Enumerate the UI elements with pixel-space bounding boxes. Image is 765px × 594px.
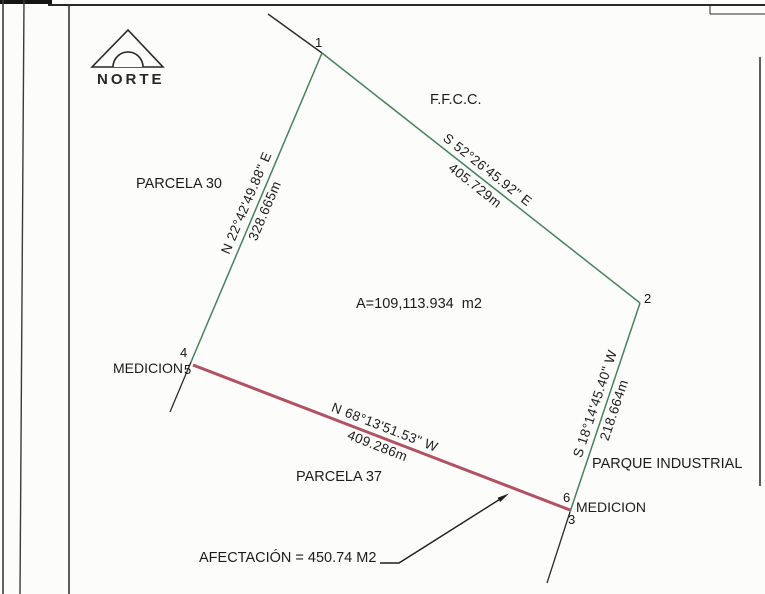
survey-plat-drawing: NORTE PARCELA 30 F.F.C.C. A=109,113.934 … bbox=[0, 0, 765, 594]
vertex-2-label: 2 bbox=[644, 291, 651, 306]
afectacion-leader-line bbox=[380, 496, 505, 563]
afectacion-label: AFECTACIÓN = 450.74 M2 bbox=[199, 551, 376, 567]
vertex-4-label: 4 bbox=[180, 345, 187, 360]
parcela-30-label: PARCELA 30 bbox=[136, 177, 222, 193]
scan-edge-line-inner bbox=[20, 0, 24, 594]
extension-line-vertex-3 bbox=[547, 512, 570, 583]
medicion-right-label: MEDICION bbox=[576, 500, 646, 515]
afectacion-leader-arrowhead-icon bbox=[498, 494, 509, 503]
scan-edge-smudge bbox=[0, 0, 52, 4]
vertex-1-label: 1 bbox=[315, 35, 322, 50]
parque-industrial-label: PARQUE INDUSTRIAL bbox=[592, 457, 742, 473]
area-label: A=109,113.934 m2 bbox=[356, 297, 482, 313]
north-label: NORTE bbox=[97, 71, 165, 88]
ffcc-label: F.F.C.C. bbox=[430, 93, 482, 109]
parcela-37-label: PARCELA 37 bbox=[296, 470, 382, 486]
vertex-6-label: 6 bbox=[563, 490, 570, 505]
vertex-3-label: 3 bbox=[568, 512, 575, 527]
vertex-5-label: 5 bbox=[184, 362, 191, 377]
north-arrow-icon bbox=[92, 30, 163, 67]
railway-extension-line bbox=[268, 14, 322, 53]
medicion-left-label: MEDICION bbox=[113, 361, 183, 376]
